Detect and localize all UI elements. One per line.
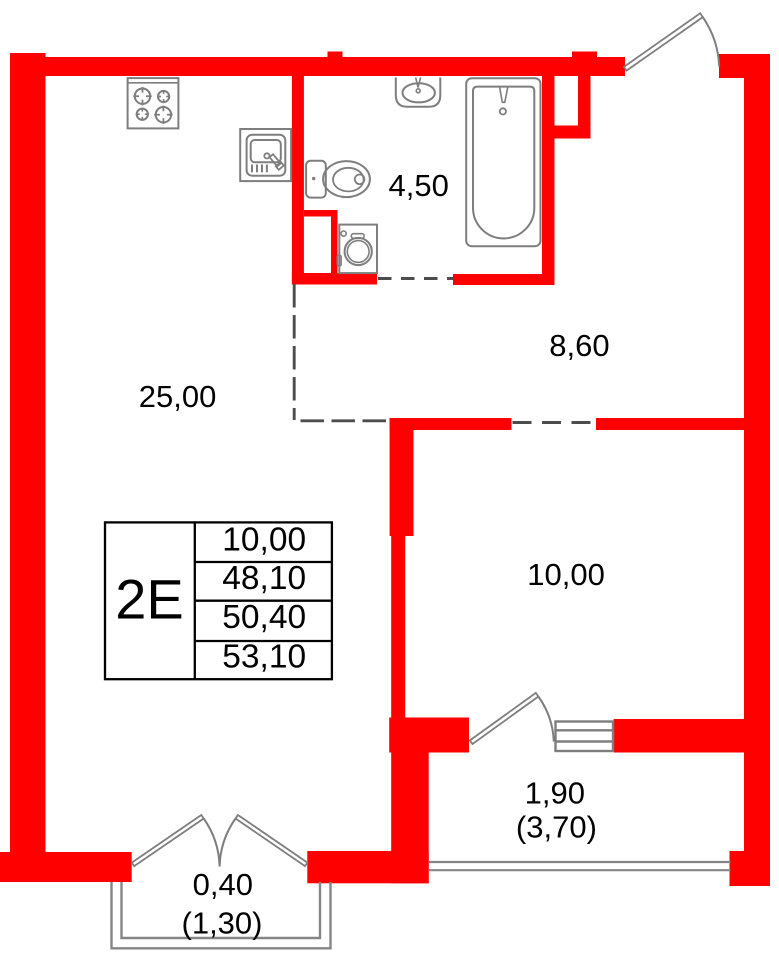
svg-text:(1,30): (1,30)	[182, 906, 263, 941]
svg-text:50,40: 50,40	[222, 599, 306, 636]
svg-text:2E: 2E	[115, 567, 184, 630]
svg-text:0,40: 0,40	[193, 867, 253, 902]
svg-text:53,10: 53,10	[222, 639, 306, 676]
svg-text:1,90: 1,90	[525, 776, 585, 811]
svg-text:4,50: 4,50	[389, 168, 449, 203]
svg-text:25,00: 25,00	[139, 379, 217, 414]
svg-text:48,10: 48,10	[222, 560, 306, 597]
svg-text:10,00: 10,00	[527, 557, 605, 592]
svg-text:8,60: 8,60	[549, 328, 609, 363]
svg-text:(3,70): (3,70)	[516, 810, 597, 845]
svg-text:10,00: 10,00	[222, 522, 306, 559]
